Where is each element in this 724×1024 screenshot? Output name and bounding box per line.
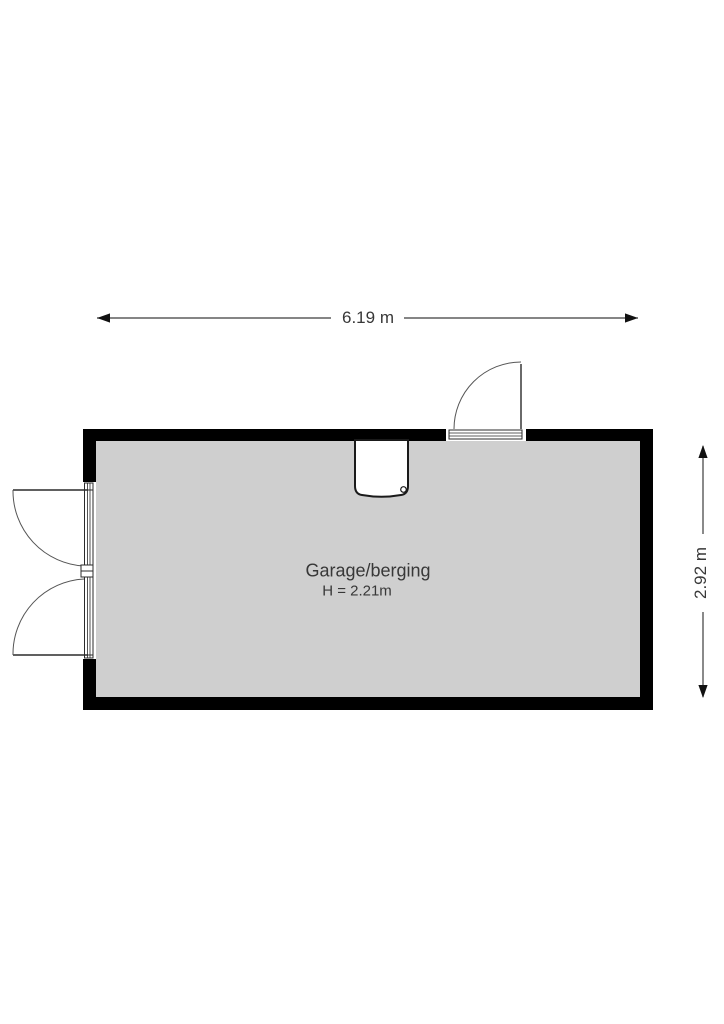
room-height-label: H = 2.21m bbox=[322, 583, 392, 600]
door-threshold bbox=[449, 430, 522, 439]
arrow-up-icon bbox=[698, 445, 707, 458]
arrow-down-icon bbox=[698, 685, 707, 698]
double-door-left bbox=[13, 483, 93, 658]
sink-icon bbox=[355, 440, 408, 497]
door-swing-arc-icon bbox=[13, 579, 84, 655]
door-swing-arc-icon bbox=[454, 362, 521, 429]
arrow-right-icon bbox=[625, 313, 638, 322]
floorplan-linework bbox=[0, 0, 724, 1024]
room-name-label: Garage/berging bbox=[305, 561, 430, 582]
single-door-top-right bbox=[449, 362, 522, 439]
sink-drain-icon bbox=[401, 487, 407, 493]
width-dimension-label: 6.19 m bbox=[342, 308, 394, 328]
arrow-left-icon bbox=[97, 313, 110, 322]
door-swing-arc-icon bbox=[13, 490, 84, 566]
sink-basin bbox=[355, 440, 408, 497]
floorplan-canvas: 6.19 m 2.92 m Garage/berging H = 2.21m bbox=[0, 0, 724, 1024]
height-dimension-label: 2.92 m bbox=[691, 547, 711, 599]
